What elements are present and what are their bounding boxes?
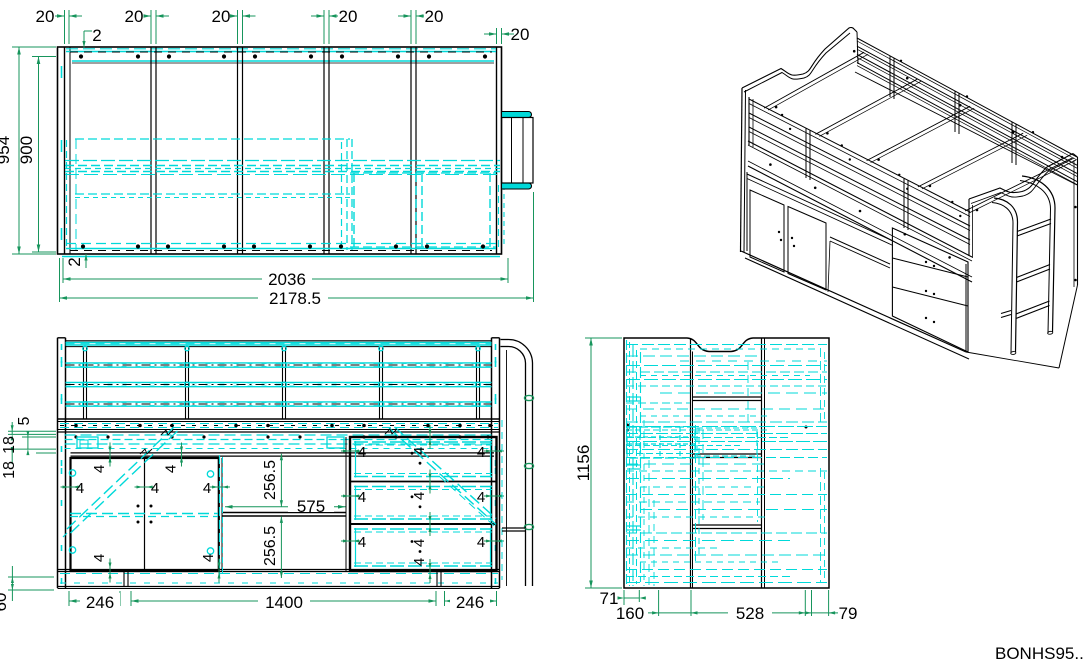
svg-text:256.5: 256.5 [262,526,279,566]
svg-text:246: 246 [86,593,114,612]
svg-text:4: 4 [358,489,366,506]
svg-text:4: 4 [411,447,428,455]
svg-text:4: 4 [477,489,485,506]
svg-text:246: 246 [456,593,484,612]
svg-text:18: 18 [1,461,18,479]
svg-text:4: 4 [358,534,366,551]
svg-text:4: 4 [200,554,217,562]
svg-text:4: 4 [358,444,366,461]
svg-text:20: 20 [36,7,55,26]
svg-text:4: 4 [91,554,108,562]
svg-text:2036: 2036 [268,270,306,289]
svg-text:575: 575 [297,497,325,516]
svg-text:20: 20 [339,7,358,26]
svg-text:954: 954 [0,136,13,164]
svg-text:900: 900 [17,136,36,164]
svg-text:160: 160 [616,604,644,623]
svg-text:1400: 1400 [265,593,303,612]
svg-text:256.5: 256.5 [262,460,279,500]
svg-text:4: 4 [411,492,428,500]
svg-text:18: 18 [1,436,18,454]
svg-text:20: 20 [511,25,530,44]
svg-text:20: 20 [125,7,144,26]
svg-text:4: 4 [76,480,84,497]
svg-text:4: 4 [151,480,159,497]
svg-text:2178.5: 2178.5 [269,289,321,308]
svg-text:1156: 1156 [574,445,593,482]
svg-text:20: 20 [425,7,444,26]
svg-text:4: 4 [477,444,485,461]
svg-text:4: 4 [203,480,211,497]
svg-text:4: 4 [411,539,428,547]
svg-text:60: 60 [0,593,10,612]
svg-text:4: 4 [91,465,108,473]
svg-text:4: 4 [411,558,428,566]
svg-text:528: 528 [736,604,764,623]
svg-text:2: 2 [92,26,101,45]
svg-text:2: 2 [65,257,84,266]
svg-text:4: 4 [163,465,180,473]
svg-text:4: 4 [477,534,485,551]
svg-text:5: 5 [16,416,33,425]
svg-text:BONHS95..: BONHS95.. [995,644,1084,663]
svg-text:79: 79 [839,604,858,623]
svg-text:20: 20 [212,7,231,26]
